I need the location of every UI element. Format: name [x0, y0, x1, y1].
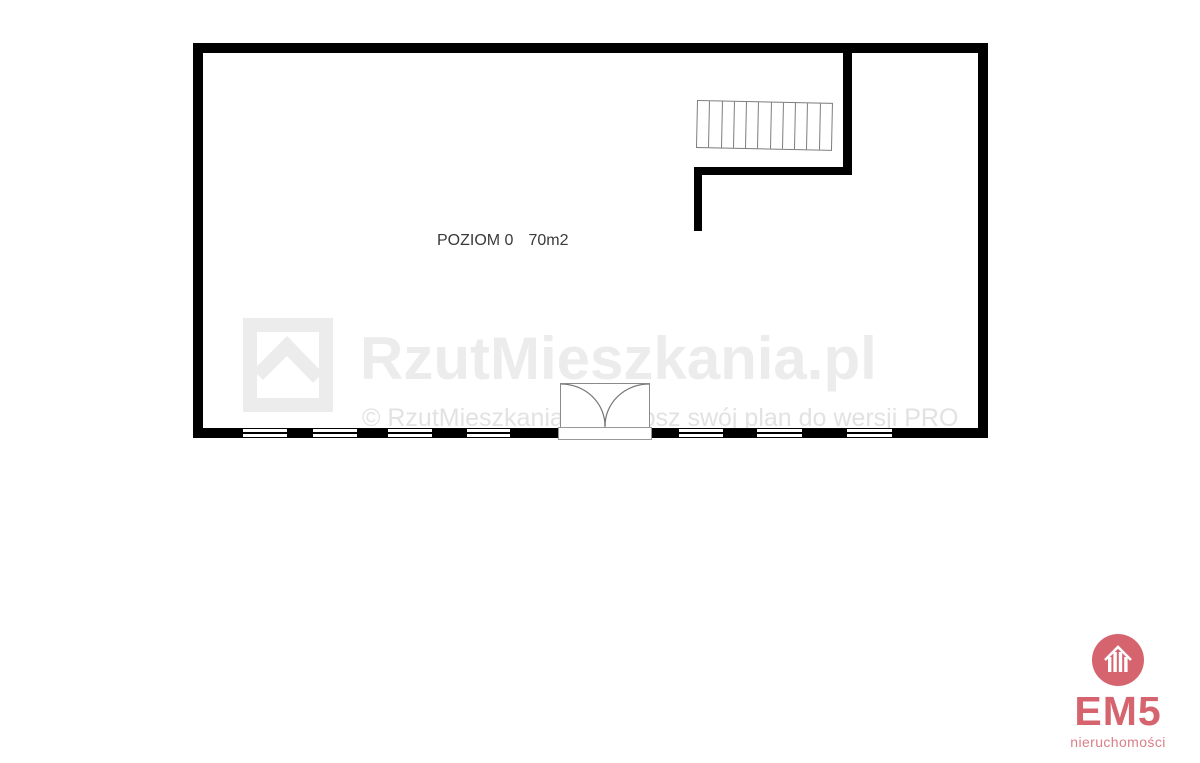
- stair-tread: [734, 102, 747, 148]
- stair-tread: [795, 103, 808, 149]
- staircase: [696, 100, 833, 151]
- window: [757, 428, 802, 438]
- stair-tread: [746, 102, 759, 148]
- stair-tread: [783, 103, 796, 149]
- window-pane-line: [757, 432, 802, 434]
- stair-tread: [697, 101, 710, 147]
- window: [679, 428, 723, 438]
- stair-tread: [771, 103, 784, 149]
- window-pane-line: [243, 432, 287, 434]
- em5-house-icon: [1092, 634, 1144, 686]
- room-label: POZIOM 070m2: [437, 232, 568, 250]
- stair-tread: [758, 102, 771, 148]
- interior-wall-landing: [694, 167, 852, 175]
- window: [847, 428, 892, 438]
- exterior-walls: [193, 43, 988, 438]
- window-pane-line: [313, 432, 357, 434]
- window: [388, 428, 432, 438]
- area-label: 70m2: [528, 232, 568, 249]
- window-pane-line: [388, 432, 432, 434]
- door-threshold: [558, 427, 652, 440]
- level-label: POZIOM 0: [437, 232, 513, 249]
- stair-tread: [722, 102, 735, 148]
- em5-subtitle: nieruchomości: [1058, 734, 1178, 750]
- window-pane-line: [679, 432, 723, 434]
- double-door: [560, 383, 650, 427]
- window: [313, 428, 357, 438]
- window-pane-line: [467, 432, 510, 434]
- window: [243, 428, 287, 438]
- window: [467, 428, 510, 438]
- window-pane-line: [847, 432, 892, 434]
- interior-wall-vertical-left: [694, 167, 702, 231]
- stair-tread: [709, 101, 722, 147]
- em5-logo: EM5 nieruchomości: [1058, 634, 1178, 750]
- em5-name: EM5: [1058, 691, 1178, 732]
- stair-tread: [820, 104, 832, 150]
- stair-tread: [807, 103, 820, 149]
- interior-wall-vertical-right: [843, 43, 852, 175]
